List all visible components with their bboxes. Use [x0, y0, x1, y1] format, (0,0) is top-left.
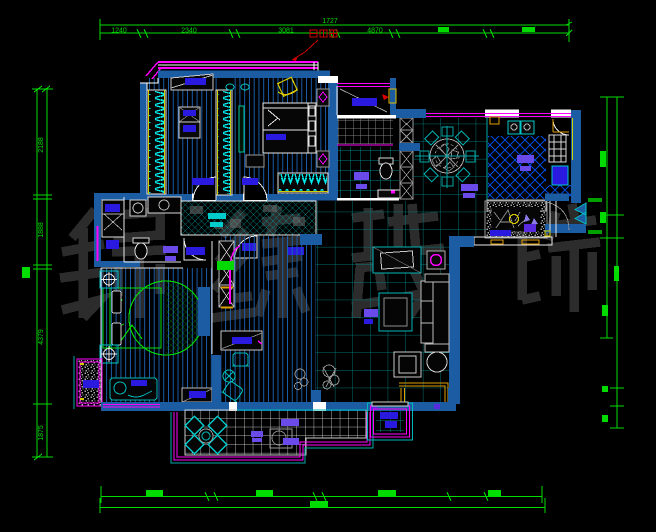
svg-text:2188: 2188: [38, 137, 45, 153]
svg-text:3081: 3081: [278, 28, 294, 35]
svg-text:1240: 1240: [111, 28, 127, 35]
svg-text:4379: 4379: [38, 329, 45, 345]
svg-text:1875: 1875: [38, 425, 45, 441]
svg-text:1888: 1888: [38, 222, 45, 238]
svg-text:1727: 1727: [322, 18, 338, 25]
svg-text:2340: 2340: [181, 28, 197, 35]
svg-text:4870: 4870: [367, 28, 383, 35]
